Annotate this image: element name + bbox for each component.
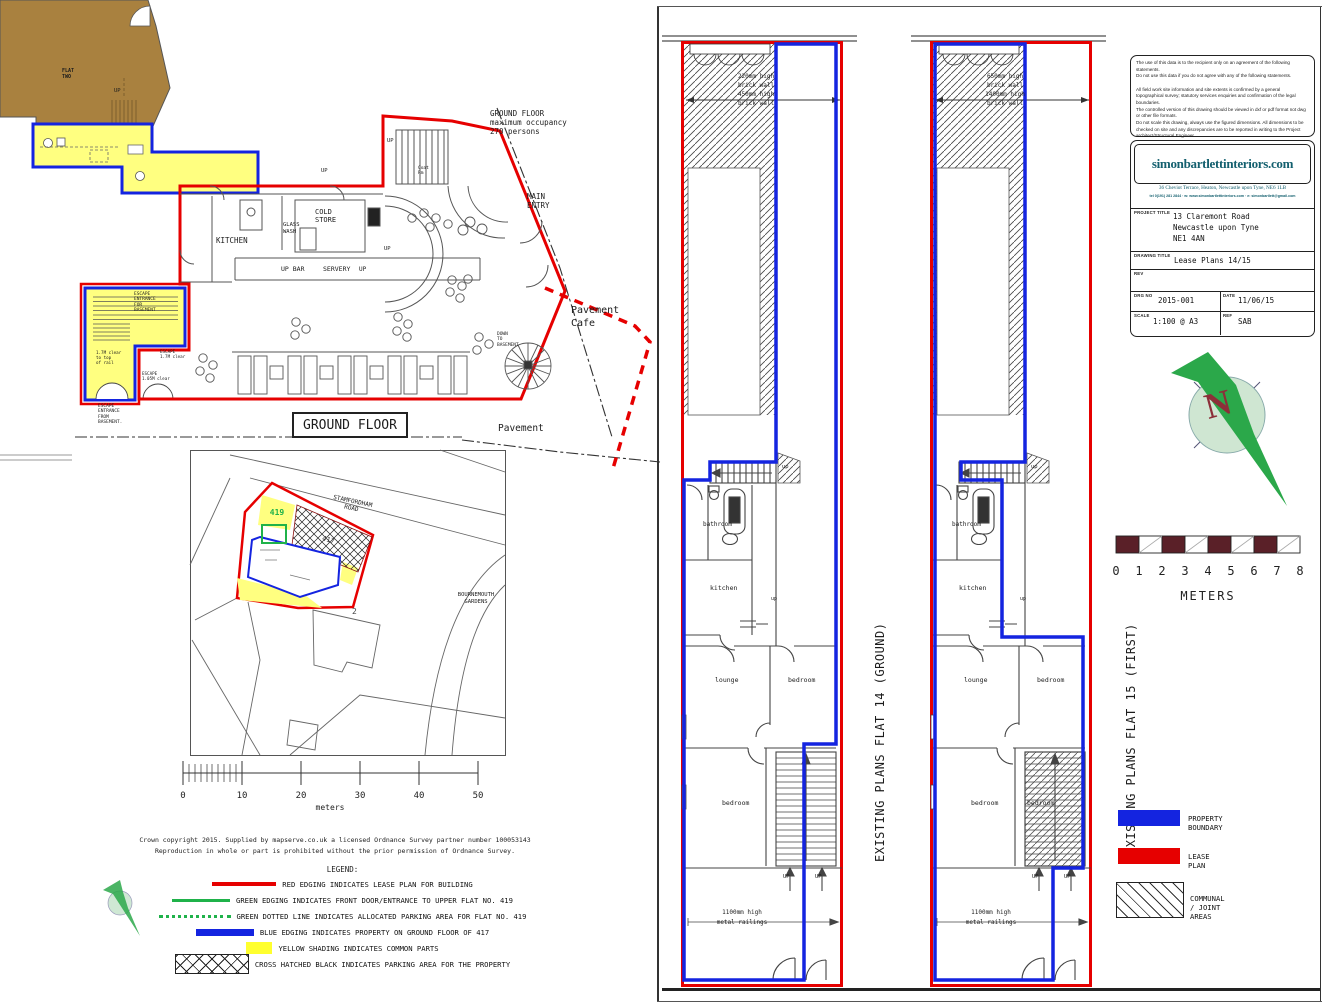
occupancy-note: GROUND FLOOR maximum occupancy 270 perso… <box>490 109 567 136</box>
m-tick-3: 3 <box>1181 564 1188 578</box>
flat14-lounge-label: lounge <box>715 677 738 685</box>
lease-plan-sheet: 0 10 20 30 40 50 meters FLAT TWO UP GROU… <box>0 0 1344 1008</box>
clearance-note: 1.7M clear to top of rail <box>96 350 121 365</box>
legend-title: LEGEND: <box>327 865 359 874</box>
scale-unit-label: meters <box>316 803 345 812</box>
up-label-brown-stair: UP <box>114 88 121 95</box>
green-line-swatch <box>172 899 230 902</box>
copyright-line-1: Crown copyright 2015. Supplied by mapser… <box>120 835 550 846</box>
legend-label: RED EDGING INDICATES LEASE PLAN FOR BUIL… <box>282 880 472 889</box>
meters-scale-bar: 0 1 2 3 4 5 6 7 8 METERS <box>1108 528 1328 608</box>
flat15-kitchen-label: kitchen <box>959 585 986 593</box>
disclaimer-text: The use of this data is to the recipient… <box>1136 60 1309 140</box>
down-to-basement-label: DOWN TO BASEMENT <box>497 332 519 348</box>
flat14-up-kitchen: up <box>771 596 777 602</box>
flat15-wall-note: 650mm high brick wall 1400mm high brick … <box>985 72 1025 108</box>
disclaimer-box: The use of this data is to the recipient… <box>1130 55 1315 137</box>
escape-entrance-note: ESCAPE ENTRANCE FOR BASEMENT <box>134 292 156 314</box>
communal-areas-swatch <box>1116 882 1184 918</box>
pavement-cafe-label: Pavement Cafe <box>571 304 619 330</box>
legend-item-crosshatch: CROSS HATCHED BLACK INDICATES PARKING AR… <box>65 956 620 972</box>
brand-name: simonbartlettinteriors.com <box>1152 156 1293 171</box>
legend-item-blue-edging: BLUE EDGING INDICATES PROPERTY ON GROUND… <box>65 924 620 940</box>
legend-left: LEGEND: RED EDGING INDICATES LEASE PLAN … <box>65 862 620 972</box>
legend-label: YELLOW SHADING INDICATES COMMON PARTS <box>278 944 438 953</box>
ref-label: REF <box>1223 313 1232 318</box>
escape-105m-note: ESCAPE 1.05M clear <box>142 371 170 381</box>
ground-floor-title: GROUND FLOOR <box>303 418 397 433</box>
flat15-bedroom2-label: bedroom <box>971 800 998 808</box>
flat15-bedroom1-label: bedroom <box>1037 677 1064 685</box>
scale-tick-40: 40 <box>414 791 425 801</box>
map-scale-bar: 0 10 20 30 40 50 meters <box>178 756 488 812</box>
flat-two-label: FLAT TWO <box>62 68 74 80</box>
flat15-bathroom-label: bathroom <box>952 521 981 528</box>
legend-item-green-edging: GREEN EDGING INDICATES FRONT DOOR/ENTRAN… <box>65 892 620 908</box>
drg-no-value: 2015-001 <box>1158 296 1194 307</box>
ref-value: SAB <box>1238 317 1252 328</box>
legend-item-green-dotted: GREEN DOTTED LINE INDICATES ALLOCATED PA… <box>65 908 620 924</box>
building-2-label: 2 <box>352 607 357 617</box>
flat15-up-kitchen: up <box>1020 596 1026 602</box>
communal-areas-label: COMMUNAL / JOINT AREAS <box>1190 894 1225 921</box>
flat14-wall-note: 220mm high brick wall 450mm high brick w… <box>738 72 774 108</box>
scale-tick-0: 0 <box>180 791 185 801</box>
north-arrow-icon <box>1150 345 1330 515</box>
crosshatch-swatch <box>175 954 249 974</box>
project-title-value: 13 Claremont Road Newcastle upon Tyne NE… <box>1173 212 1259 245</box>
flat14-up-yard-a: UP <box>783 874 790 881</box>
coat-room-label: Coat Rm <box>418 166 429 177</box>
legend-label: CROSS HATCHED BLACK INDICATES PARKING AR… <box>255 960 510 969</box>
servery-label: SERVERY <box>323 266 350 274</box>
drawing-title-label: DRAWING TITLE <box>1134 253 1171 258</box>
lease-plan-swatch <box>1118 848 1180 864</box>
flat-419-label: 419 <box>270 508 284 518</box>
date-value: 11/06/15 <box>1238 296 1274 307</box>
rev-label: REV <box>1134 271 1143 276</box>
flat14-bedroom2-label: bedroom <box>722 800 749 808</box>
date-label: DATE <box>1223 293 1235 298</box>
flat14-bathroom-label: bathroom <box>703 521 732 528</box>
brand-address: 36 Cheviot Terrace, Heaton, Newcastle up… <box>1135 185 1310 191</box>
glass-wash-label: GLASS WASH <box>283 222 300 235</box>
lease-plan-label: LEASE PLAN <box>1188 852 1210 870</box>
scale-tick-50: 50 <box>473 791 484 801</box>
m-tick-8: 8 <box>1296 564 1303 578</box>
flat14-plan-title: EXISTING PLANS FLAT 14 (GROUND) <box>873 623 887 862</box>
scale-tick-20: 20 <box>296 791 307 801</box>
flat14-kitchen-label: kitchen <box>710 585 737 593</box>
red-line-swatch <box>212 882 276 886</box>
m-tick-6: 6 <box>1250 564 1257 578</box>
spiral-stair <box>505 343 551 389</box>
legend-label: GREEN DOTTED LINE INDICATES ALLOCATED PA… <box>237 912 527 921</box>
legend-label: BLUE EDGING INDICATES PROPERTY ON GROUND… <box>260 928 489 937</box>
m-tick-7: 7 <box>1273 564 1280 578</box>
adjacent-building-brown <box>0 0 170 133</box>
scale-value: 1:100 @ A3 <box>1153 317 1198 328</box>
ground-floor-title-box: GROUND FLOOR <box>292 412 408 438</box>
flat14-up-stairs: up <box>782 464 789 471</box>
legend-label: GREEN EDGING INDICATES FRONT DOOR/ENTRAN… <box>236 896 513 905</box>
green-dotted-swatch <box>159 915 231 918</box>
legend-title-row: LEGEND: <box>65 862 620 876</box>
m-tick-0: 0 <box>1112 564 1119 578</box>
flat14-up-yard-b: UP <box>815 874 822 881</box>
up-label-d: UP <box>359 266 366 273</box>
bournemouth-gardens-label: BOURNEMOUTH GARDENS <box>458 592 494 605</box>
m-tick-4: 4 <box>1204 564 1211 578</box>
drg-no-label: DRG NO <box>1134 293 1152 298</box>
m-tick-5: 5 <box>1227 564 1234 578</box>
scale-label: SCALE <box>1134 313 1150 318</box>
flat-15-plan-drawing <box>909 25 1109 1000</box>
drawing-title-value: Lease Plans 14/15 <box>1174 256 1251 267</box>
brand-box: simonbartlettinteriors.com <box>1134 144 1311 184</box>
m-tick-1: 1 <box>1135 564 1142 578</box>
flat-14-plan-drawing <box>660 25 860 1000</box>
flat15-up-yard-a: UP <box>1032 874 1039 881</box>
scale-tick-10: 10 <box>237 791 248 801</box>
brand-contact: tel 0(191) 281 2844 · w: www.simonbartle… <box>1135 194 1310 198</box>
cold-store-label: COLD STORE <box>315 208 336 225</box>
sheet-top-border <box>657 6 1322 7</box>
kitchen-label: KITCHEN <box>216 236 248 245</box>
escape-17m-note: ESCAPE 1.7M clear <box>160 349 185 359</box>
blue-line-swatch <box>196 929 254 936</box>
common-corridor-yellow <box>33 124 258 193</box>
project-title-label: PROJECT TITLE <box>1134 210 1170 215</box>
legend-item-yellow-shading: YELLOW SHADING INDICATES COMMON PARTS <box>65 940 620 956</box>
up-label-a: UP <box>387 138 394 145</box>
flat14-bedroom1-label: bedroom <box>788 677 815 685</box>
main-entry-label: MAIN ENTRY <box>527 192 550 210</box>
copyright-block: Crown copyright 2015. Supplied by mapser… <box>120 835 550 857</box>
flat15-lounge-label: lounge <box>964 677 987 685</box>
up-label-b: UP <box>321 168 328 175</box>
legend-item-red-edging: RED EDGING INDICATES LEASE PLAN FOR BUIL… <box>65 876 620 892</box>
flat15-railings-note: 1100mm high metal railings <box>966 908 1017 927</box>
pavement-label: Pavement <box>498 423 544 434</box>
flat15-up-yard-b: UP <box>1064 874 1071 881</box>
flat15-bedroom3-label: bedroom <box>1027 800 1054 808</box>
sheet-divider-line <box>657 6 659 1002</box>
meters-unit-label: METERS <box>1180 589 1235 603</box>
flat15-up-stairs: up <box>1031 464 1038 471</box>
yellow-swatch <box>246 942 272 954</box>
property-boundary-swatch <box>1118 810 1180 826</box>
title-block: simonbartlettinteriors.com 36 Cheviot Te… <box>1130 140 1315 337</box>
copyright-line-2: Reproduction in whole or part is prohibi… <box>120 846 550 857</box>
sheet-bottom-border <box>657 1001 1322 1002</box>
scale-tick-30: 30 <box>355 791 366 801</box>
up-label-c: UP <box>384 246 391 253</box>
m-tick-2: 2 <box>1158 564 1165 578</box>
up-bar-label: UP BAR <box>281 266 304 274</box>
flat14-railings-note: 1100mm high metal railings <box>717 908 768 927</box>
property-boundary-label: PROPERTY BOUNDARY <box>1188 814 1223 832</box>
escape-from-basement-note: ESCAPE ENTRANCE FROM BASEMENT. <box>98 404 122 426</box>
